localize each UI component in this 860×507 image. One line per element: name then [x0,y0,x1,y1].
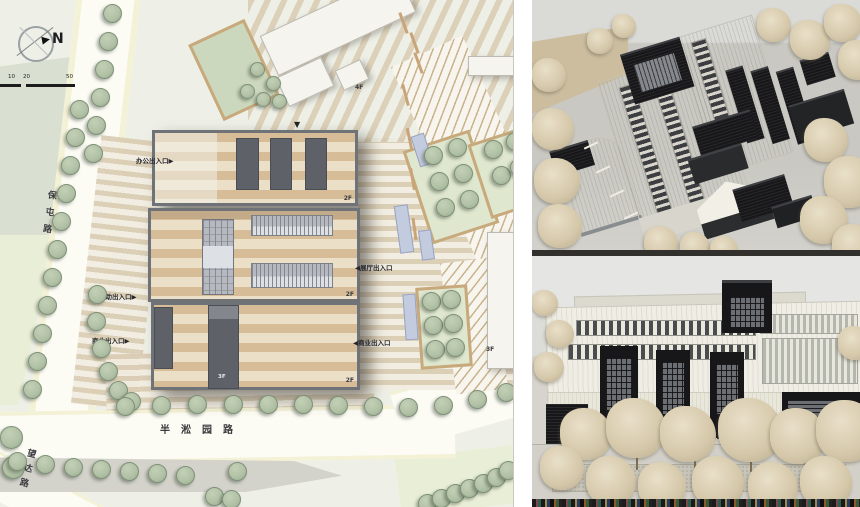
tree [87,116,106,135]
model-tree [540,446,584,490]
tree [120,462,139,481]
roof-cube [722,280,772,333]
site-plan: 4F 3F 2F [0,0,514,507]
tree [205,487,224,506]
roof-dark-strip [154,307,173,369]
model-tree [546,320,574,348]
tree [84,144,103,163]
model-tree [612,14,636,38]
scale-bar [26,84,75,87]
tree [88,285,107,304]
scale-tick-50: 50 [66,74,73,80]
tree [188,395,207,414]
tree [422,292,441,311]
tree [448,138,467,157]
tree [444,314,463,333]
cube-glazing [730,297,764,327]
roof-light-section [155,133,217,203]
tree [48,240,67,259]
tower-top [209,306,238,319]
compass-north-label: N [52,31,64,47]
tree [240,84,255,99]
screenshot: 4F 3F 2F [0,0,860,507]
roof-volume [270,138,292,190]
tree [497,383,514,402]
tree [256,92,271,107]
floor-label-3f-tower: 3F [218,374,226,380]
skylight-vertical [202,219,234,295]
tree [92,339,111,358]
skylight-strip-1 [251,215,333,236]
tree [266,76,281,91]
floor-label-4f: 4F [355,84,363,91]
tree [99,32,118,51]
skylight-strip-2 [251,263,333,288]
tree [434,396,453,415]
model-tree [532,58,566,92]
tree [442,290,461,309]
scale-bar [0,84,21,87]
model-tree [534,158,580,204]
tree [70,100,89,119]
tree [28,352,47,371]
tree [499,461,514,480]
model-tree [660,406,716,462]
tree [426,340,445,359]
tree [23,380,42,399]
tree [66,128,85,147]
model-tree [838,40,860,80]
tree [228,462,247,481]
office-block-roof: 2F [152,130,358,206]
model-tree [534,352,564,382]
tree [424,146,443,165]
tree [460,190,479,209]
tree [116,397,135,416]
tree [99,362,118,381]
tree [424,316,443,335]
tree [36,455,55,474]
model-tree [538,204,582,248]
tree [92,460,111,479]
tree [454,164,473,183]
floor-label-2f-commercial: 2F [346,377,354,384]
tree [484,140,503,159]
model-photos [532,0,860,507]
main-building: 2F 2F 3F 2F [148,126,362,392]
entrance-label-commercial-east: ◀商业出入口 [353,340,391,347]
model-photo-bottom [532,256,860,507]
east-annex [468,56,514,76]
tree [294,395,313,414]
commercial-block-roof: 3F 2F [151,302,360,390]
tree [152,396,171,415]
tree [87,312,106,331]
model-tree [606,398,666,458]
roof-volume [236,138,259,190]
model-tree [757,8,791,42]
north-marker-icon: ▼ [294,120,300,129]
model-tree [532,290,558,316]
tree [259,395,278,414]
tree [57,184,76,203]
compass-arrow-icon [41,35,50,44]
model-tree [824,4,860,42]
tree [492,166,511,185]
tree [61,156,80,175]
tree [364,397,383,416]
tree [33,324,52,343]
tree [43,268,62,287]
floor-label-2f-exhibition: 2F [346,291,354,298]
model-photo-top [532,0,860,250]
tree [436,198,455,217]
model-tree [532,108,574,150]
tree [95,60,114,79]
tower-glazing [634,53,682,92]
entrance-label-office: 办公出入口▶ [136,158,174,165]
tree [446,338,465,357]
tree [224,395,243,414]
model-tree [710,236,738,250]
tree [38,296,57,315]
tree [430,172,449,191]
floor-label-3f-east: 3F [486,346,494,353]
model-tree [587,28,613,54]
scale-tick-10: 10 [8,74,15,80]
road-label-south: 半淞园路 [160,421,244,436]
tree [8,452,27,471]
tree [91,88,110,107]
scale-tick-20: 20 [23,74,30,80]
tree [250,62,265,77]
image-noise-strip [532,499,860,507]
exhibition-block-roof: 2F [148,208,360,302]
tree [64,458,83,477]
tree [52,212,71,231]
floor-label-2f-office: 2F [344,195,352,202]
tree [222,490,241,507]
tree [329,396,348,415]
tree [272,94,287,109]
tree [399,398,418,417]
tree [176,466,195,485]
roof-volume [305,138,327,190]
tree [468,390,487,409]
tower-volume: 3F [208,305,239,389]
tree [103,4,122,23]
tree [148,464,167,483]
entrance-label-exhibition: ◀展厅出入口 [355,265,393,272]
tree [0,426,23,449]
